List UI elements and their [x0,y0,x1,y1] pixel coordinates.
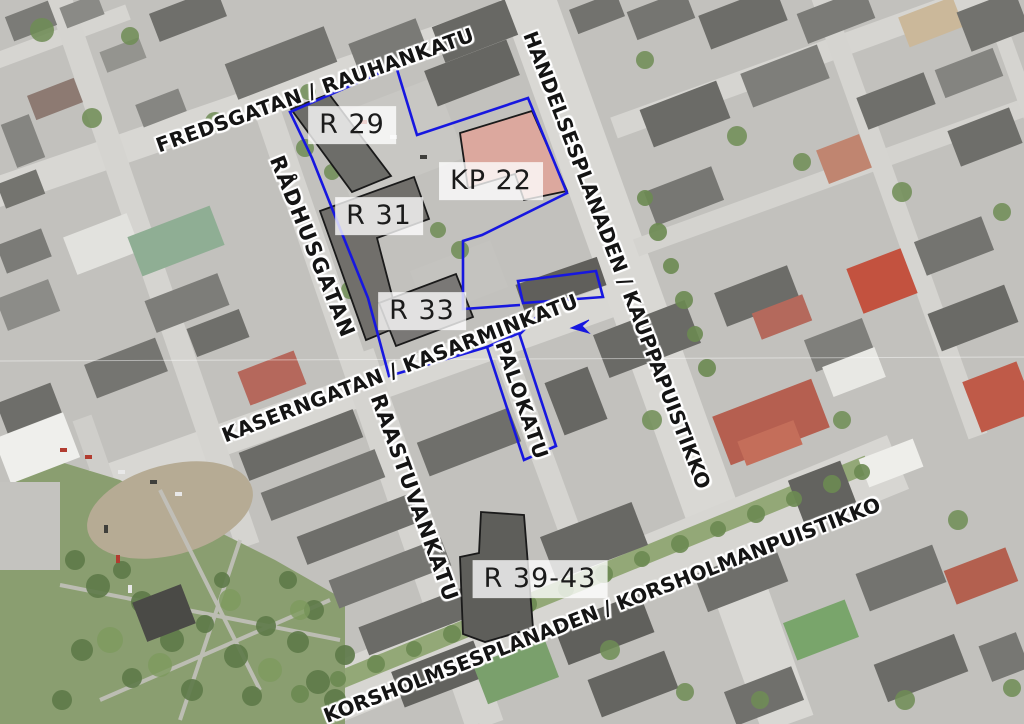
block-label-r29: R 29 [308,106,396,144]
block-label-r31: R 31 [335,197,423,235]
block-label-kp22: KP 22 [439,162,543,200]
block-label-r33: R 33 [378,292,466,330]
block-label-r39-43: R 39-43 [473,560,608,598]
aerial-map: FREDSGATAN / RAUHANKATU RÅDHUSGATAN HAND… [0,0,1024,724]
